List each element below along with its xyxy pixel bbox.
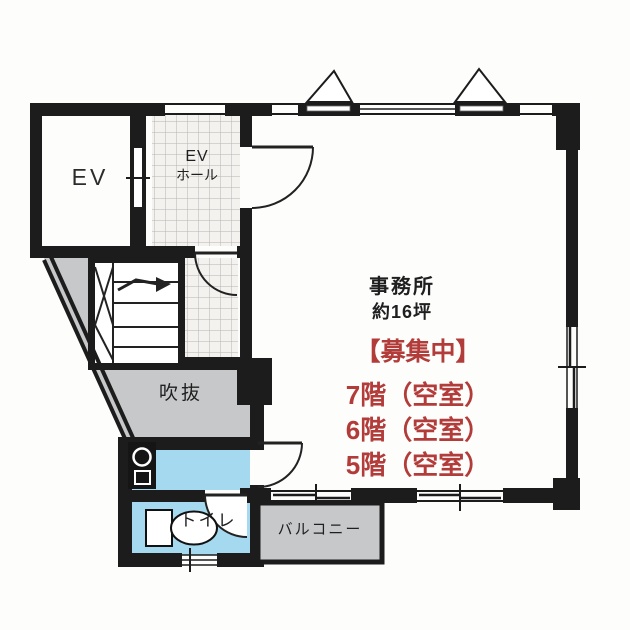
stairs <box>95 263 178 363</box>
elevator-hall-label-line2: ホール <box>158 167 236 183</box>
balcony-label: バルコニー <box>260 521 380 538</box>
toilet-label: トイレ <box>164 511 252 531</box>
vacancy-header: 【募集中】 <box>335 338 501 367</box>
elevator-door-icon <box>126 148 150 207</box>
office-label: 事務所 <box>344 276 460 299</box>
vacancy-floor-6: 6階（空室） <box>330 410 506 447</box>
floor-plan: EV EV ホール 吹抜 トイレ バルコニー 事務所 約16坪 【募集中】 7階… <box>0 0 630 630</box>
office-area-label: 約16坪 <box>344 302 460 323</box>
kitchenette-icon <box>128 442 156 489</box>
elevator-label: EV <box>54 164 126 190</box>
void-label: 吹抜 <box>138 383 224 405</box>
vacancy-floor-5: 5階（空室） <box>330 445 506 482</box>
vacancy-floor-7: 7階（空室） <box>330 375 506 412</box>
elevator-hall-label-line1: EV <box>158 148 236 166</box>
window-triangle-icons <box>307 69 505 102</box>
